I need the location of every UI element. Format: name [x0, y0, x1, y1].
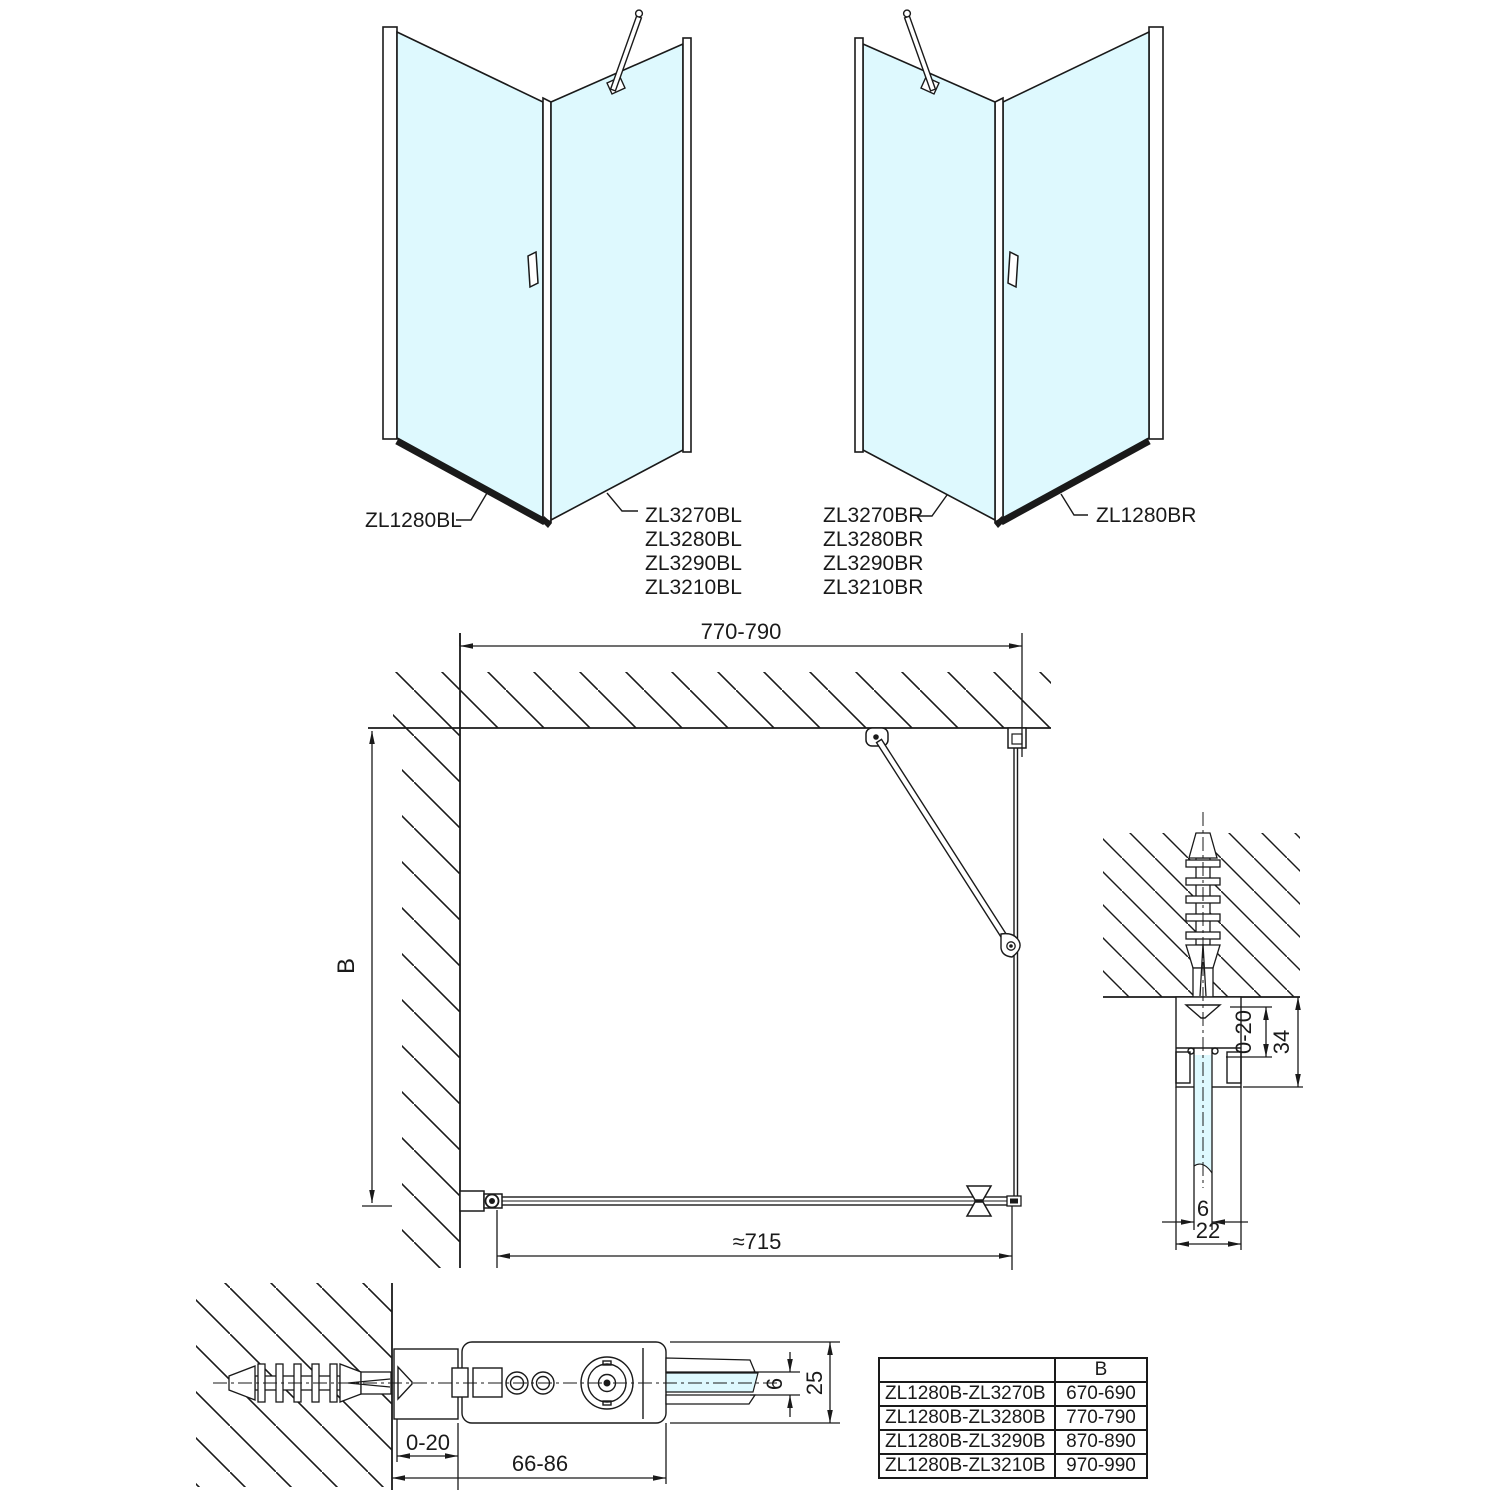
- hinge-glass: [666, 1358, 758, 1404]
- combo-code: ZL1280B-ZL3210B: [879, 1454, 1055, 1478]
- combo-code: ZL1280B-ZL3290B: [879, 1430, 1055, 1454]
- label-door: ZL3270BL: [645, 504, 742, 527]
- size-table: B ZL1280B-ZL3270B 670-690 ZL1280B-ZL3280…: [878, 1357, 1148, 1479]
- dim-range: 66-86: [512, 1451, 568, 1476]
- table-row: ZL1280B-ZL3210B 970-990: [879, 1454, 1147, 1478]
- dim-plan-depth: B: [333, 958, 360, 974]
- dim-adjustment: 0-20: [1231, 1010, 1256, 1054]
- enclosure-right-view: [855, 10, 1163, 528]
- b-range: 670-690: [1055, 1382, 1147, 1406]
- table-row: ZL1280B-ZL3270B 670-690: [879, 1382, 1147, 1406]
- dim-height: 25: [802, 1371, 827, 1395]
- label-door: ZL3290BR: [823, 552, 923, 575]
- dim-plan-width: 770-790: [701, 619, 782, 644]
- plan-side-panel-glass: [1014, 748, 1018, 1203]
- label-door: ZL3270BR: [823, 504, 923, 527]
- table-row: ZL1280B-ZL3280B 770-790: [879, 1406, 1147, 1430]
- plan-view: 770-790 B ≈715: [333, 619, 1051, 1270]
- door-hinge: [460, 1191, 502, 1211]
- label-left-doors: ZL3270BL ZL3280BL ZL3290BL ZL3210BL: [645, 504, 742, 599]
- label-right-doors: ZL3270BR ZL3280BR ZL3290BR ZL3210BR: [823, 504, 923, 599]
- b-range: 870-890: [1055, 1430, 1147, 1454]
- plan-support-bar: [866, 728, 1020, 957]
- label-left-side-panel: ZL1280BL: [365, 509, 462, 532]
- b-range: 770-790: [1055, 1406, 1147, 1430]
- table-header-b: B: [1055, 1358, 1147, 1382]
- label-door: ZL3210BL: [645, 576, 742, 599]
- technical-drawing-sheet: ZL1280BL ZL3270BL ZL3280BL ZL3290BL ZL32…: [0, 0, 1500, 1500]
- label-door: ZL3280BR: [823, 528, 923, 551]
- b-range: 970-990: [1055, 1454, 1147, 1478]
- hinge-detail: 0-20 66-86 6 25: [196, 1283, 840, 1490]
- dim-glass-thickness: 6: [762, 1378, 787, 1390]
- table-row: ZL1280B-ZL3290B 870-890: [879, 1430, 1147, 1454]
- wall-profile-detail: 0-20 34 6 22: [1103, 812, 1303, 1250]
- dim-profile-depth: 34: [1269, 1030, 1294, 1054]
- table-header-row: B: [879, 1358, 1147, 1382]
- label-door: ZL3280BL: [645, 528, 742, 551]
- left-wall-hatch: [402, 728, 460, 1268]
- combo-code: ZL1280B-ZL3280B: [879, 1406, 1055, 1430]
- label-door: ZL3290BL: [645, 552, 742, 575]
- top-wall-hatch: [393, 672, 1051, 728]
- combo-code: ZL1280B-ZL3270B: [879, 1382, 1055, 1406]
- plan-door: [460, 1186, 1021, 1216]
- label-door: ZL3210BR: [823, 576, 923, 599]
- label-right-side-panel: ZL1280BR: [1096, 504, 1196, 527]
- dim-adjustment: 0-20: [406, 1430, 450, 1455]
- dim-plan-door-width: ≈715: [733, 1229, 782, 1254]
- enclosure-left-view: [383, 10, 691, 528]
- plan-wall-bracket: [1008, 728, 1026, 748]
- dim-profile-width: 22: [1196, 1218, 1220, 1243]
- table-header-empty: [879, 1358, 1055, 1382]
- drawing-svg: ZL1280BL ZL3270BL ZL3280BL ZL3290BL ZL32…: [0, 0, 1500, 1500]
